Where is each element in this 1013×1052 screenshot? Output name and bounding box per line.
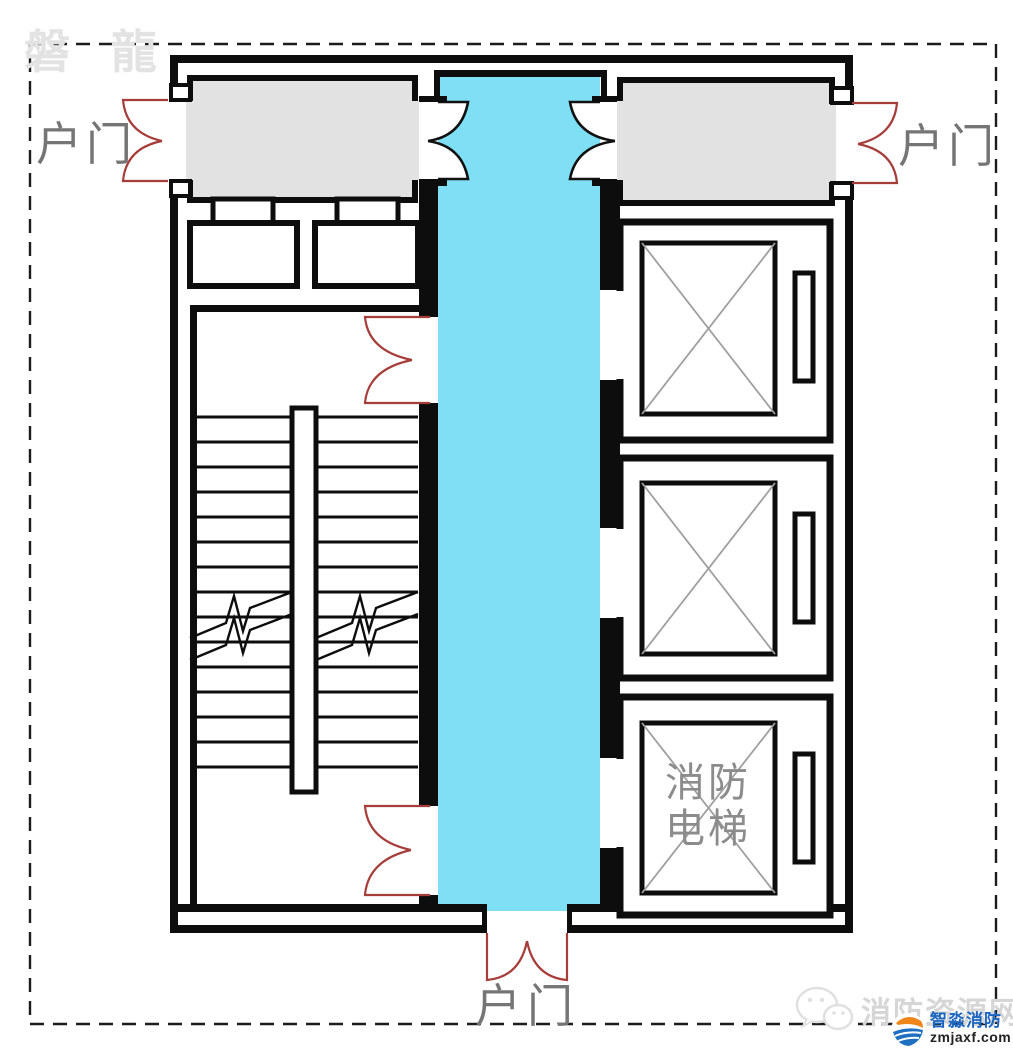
- stair-door-bottom-swing: [365, 806, 430, 895]
- duct-connector-2: [337, 199, 398, 223]
- label-fire-elevator-line2: 电梯: [608, 806, 808, 852]
- bottom-door-jamb-right: [567, 904, 572, 933]
- room-right-inner-door-gap: [617, 101, 625, 180]
- site-logo-name: 智淼消防: [930, 1012, 1011, 1030]
- unit-room-left: [190, 78, 415, 200]
- label-fire-elevator-line1: 消防: [608, 760, 808, 806]
- duct-box-2: [315, 223, 418, 286]
- site-logo-domain: zmjaxf.com: [930, 1030, 1011, 1045]
- elevator-door-gap-2: [613, 529, 626, 617]
- outer-wall-right-lower: [845, 183, 853, 933]
- inner-wall-bottom-left: [178, 904, 487, 912]
- stairwell: [190, 408, 418, 792]
- entry-door-right-swing: [852, 103, 897, 183]
- stair-treads-left: [197, 417, 292, 767]
- counterweight-1: [795, 273, 813, 381]
- wechat-icon: [793, 986, 855, 1034]
- room-right-door-gap: [828, 104, 836, 182]
- watermark-brand: 磐 龍: [24, 16, 171, 82]
- stairwell-left-wall: [190, 305, 197, 911]
- stair-divider: [292, 408, 316, 792]
- floor-plan-drawing: [0, 0, 1013, 1052]
- stair-door-top-swing: [365, 317, 430, 403]
- left-door-jamb-top: [171, 85, 190, 100]
- label-entry-door-left: 户门: [36, 108, 136, 174]
- counterweight-2: [795, 514, 813, 622]
- outer-wall-top: [170, 55, 853, 63]
- floor-plan-canvas: 磐 龍 户门 户门 户门 消防 电梯 消防资源网 智淼消防: [0, 0, 1013, 1052]
- right-door-jamb-bottom: [832, 183, 852, 198]
- outer-wall-bottom-right: [567, 925, 853, 933]
- elevator-door-gap-1: [613, 291, 626, 379]
- left-door-jamb-bottom: [171, 181, 190, 196]
- outer-wall-left-lower: [170, 181, 178, 933]
- site-logo-icon: [890, 1012, 926, 1048]
- label-fire-elevator: 消防 电梯: [608, 760, 808, 852]
- duct-box-1: [190, 223, 297, 286]
- label-entry-door-right: 户门: [898, 110, 998, 176]
- corridor-area: [438, 76, 600, 911]
- site-logo: 智淼消防 zmjaxf.com: [890, 1012, 1011, 1048]
- room-left-door-gap: [186, 101, 194, 180]
- label-entry-door-bottom: 户门: [427, 970, 627, 1036]
- stairwell-top-wall: [190, 305, 438, 312]
- unit-room-right: [620, 80, 832, 203]
- duct-boxes: [190, 199, 418, 286]
- duct-connector-1: [213, 199, 273, 223]
- corridor-top-wall: [434, 70, 603, 77]
- outer-wall-bottom-left: [170, 925, 487, 933]
- right-door-jamb-top: [832, 88, 852, 103]
- stair-treads-right: [316, 417, 418, 767]
- bottom-door-jamb-left: [482, 904, 487, 933]
- room-left-inner-door-gap: [411, 101, 419, 180]
